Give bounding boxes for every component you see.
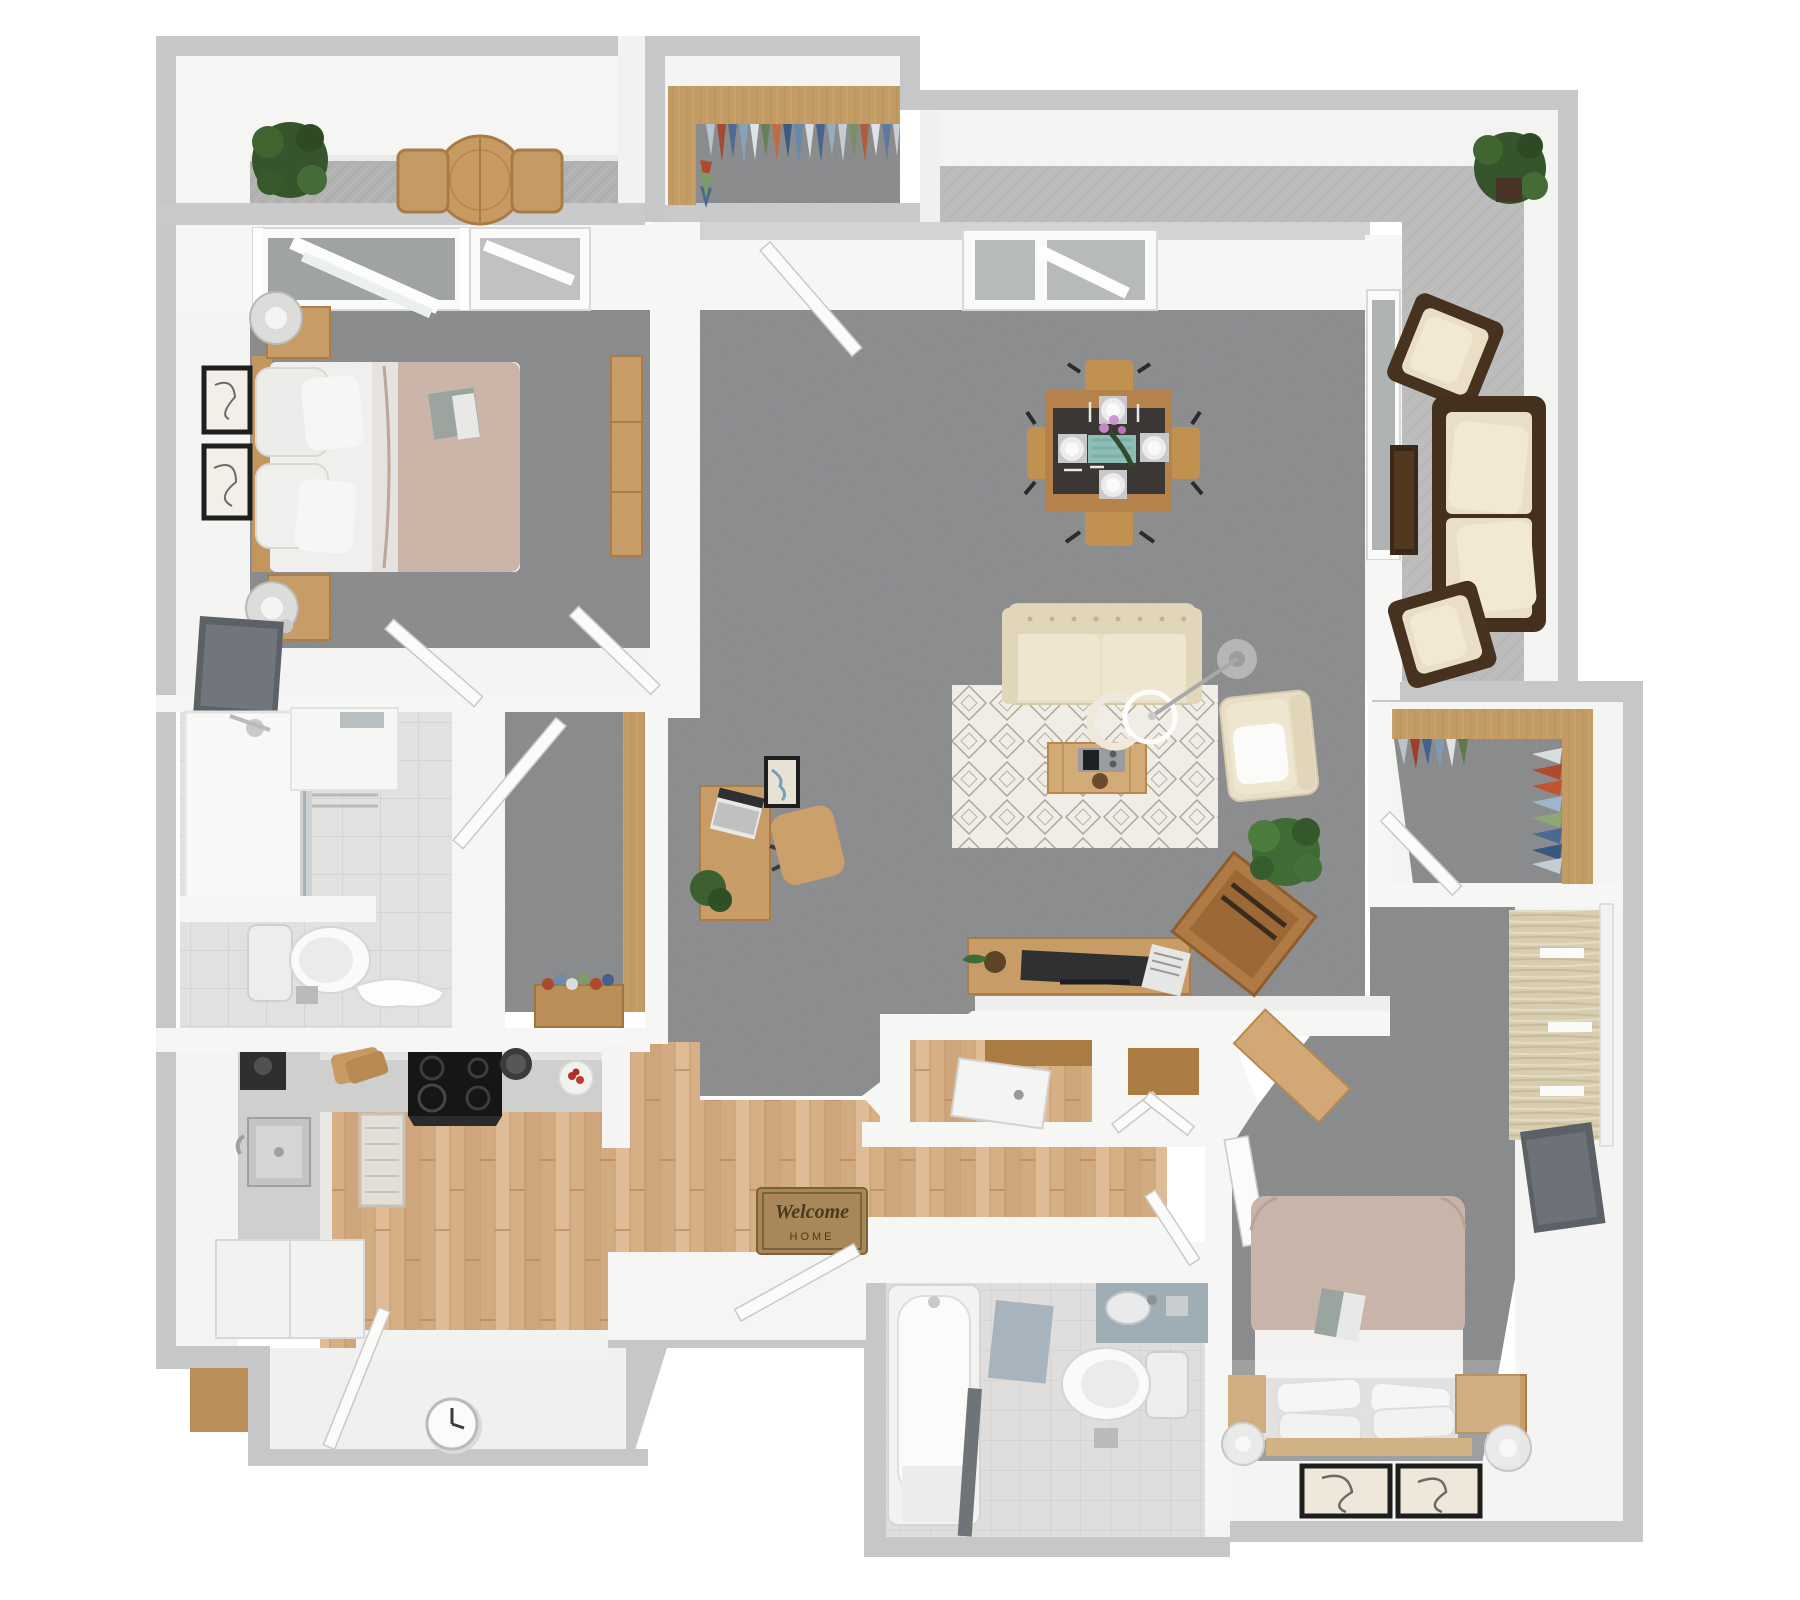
svg-text:Welcome: Welcome: [775, 1201, 849, 1223]
svg-text:HOME: HOME: [790, 1231, 835, 1243]
